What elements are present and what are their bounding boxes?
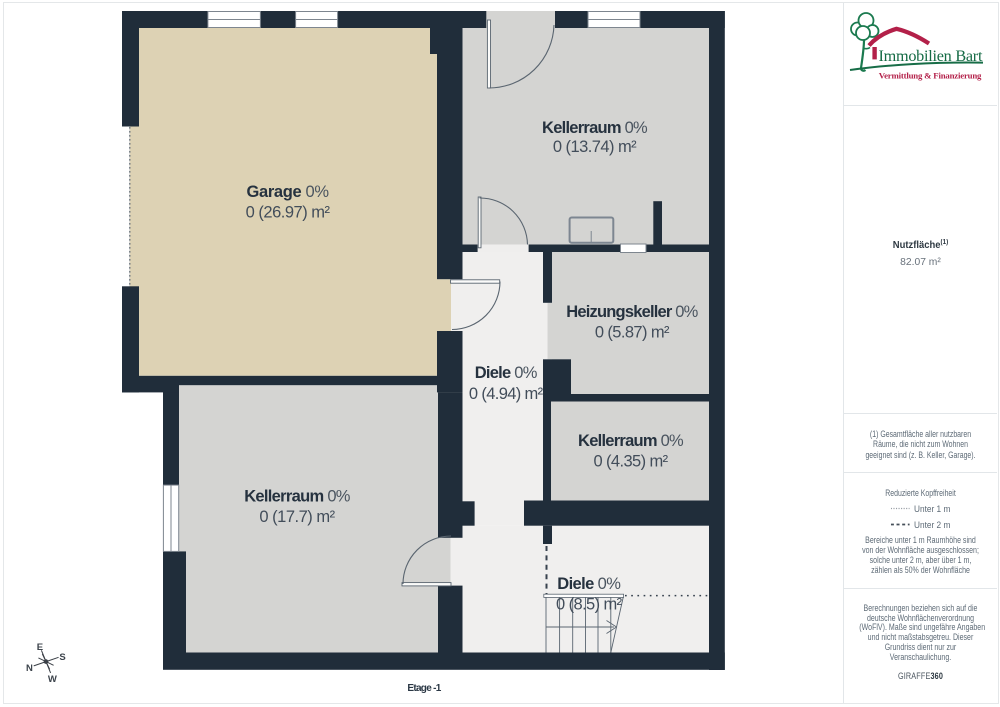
- svg-text:0 (4.94) m²: 0 (4.94) m²: [469, 385, 544, 403]
- svg-text:Kellerraum 0%: Kellerraum 0%: [244, 488, 351, 506]
- svg-text:0 (13.74) m²: 0 (13.74) m²: [553, 138, 637, 156]
- svg-text:Diele 0%: Diele 0%: [557, 575, 621, 593]
- svg-text:Vermittlung & Finanzierung: Vermittlung & Finanzierung: [879, 70, 982, 80]
- svg-text:Diele 0%: Diele 0%: [475, 364, 538, 382]
- svg-text:0 (17.7) m²: 0 (17.7) m²: [259, 508, 335, 526]
- svg-text:Heizungskeller 0%: Heizungskeller 0%: [566, 303, 698, 321]
- svg-text:0 (26.97) m²: 0 (26.97) m²: [246, 204, 331, 222]
- svg-text:0 (8.5) m²: 0 (8.5) m²: [556, 595, 623, 613]
- svg-text:W: W: [48, 674, 57, 685]
- svg-text:Kellerraum 0%: Kellerraum 0%: [542, 119, 648, 137]
- svg-text:Kellerraum 0%: Kellerraum 0%: [578, 432, 684, 450]
- svg-text:E: E: [37, 642, 43, 653]
- svg-text:Etage -1: Etage -1: [407, 683, 441, 694]
- svg-text:0 (5.87) m²: 0 (5.87) m²: [595, 324, 670, 342]
- svg-text:0 (4.35) m²: 0 (4.35) m²: [593, 453, 668, 471]
- svg-text:S: S: [59, 652, 65, 663]
- svg-text:N: N: [26, 663, 33, 674]
- svg-text:Garage 0%: Garage 0%: [247, 183, 330, 201]
